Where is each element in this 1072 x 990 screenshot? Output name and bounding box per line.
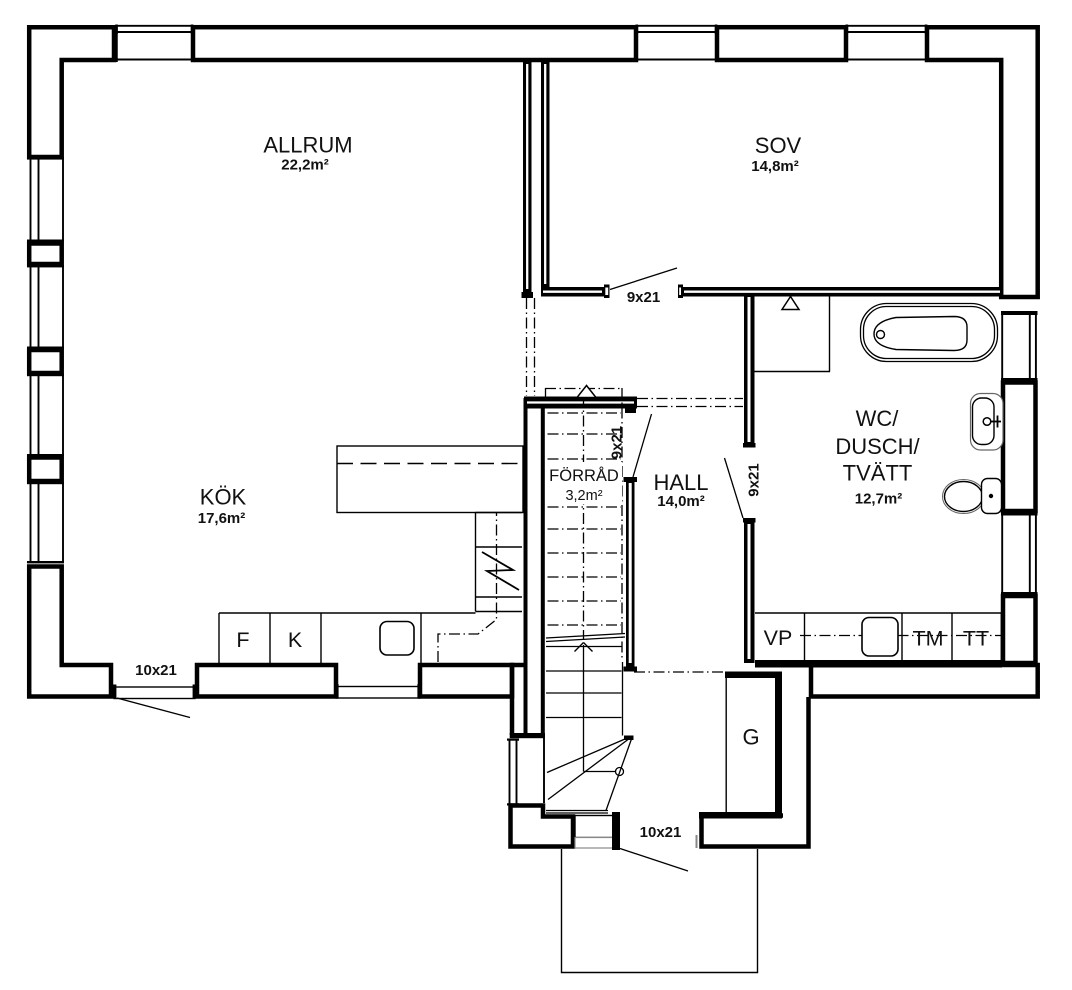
svg-text:VP: VP	[764, 626, 793, 650]
svg-text:DUSCH/: DUSCH/	[835, 434, 920, 459]
svg-text:10x21: 10x21	[135, 662, 177, 679]
svg-text:KÖK: KÖK	[200, 485, 247, 510]
svg-text:14,0m²: 14,0m²	[657, 493, 705, 510]
svg-text:17,6m²: 17,6m²	[198, 510, 246, 527]
svg-text:TT: TT	[963, 627, 989, 651]
svg-text:12,7m²: 12,7m²	[855, 491, 903, 508]
svg-text:10x21: 10x21	[640, 824, 682, 841]
svg-text:ALLRUM: ALLRUM	[263, 133, 352, 158]
svg-text:G: G	[742, 725, 759, 750]
svg-text:9x21: 9x21	[746, 463, 763, 496]
svg-text:9x21: 9x21	[609, 426, 626, 459]
svg-text:3,2m²: 3,2m²	[565, 488, 602, 504]
svg-text:K: K	[288, 628, 303, 652]
svg-text:9x21: 9x21	[627, 289, 660, 306]
svg-text:22,2m²: 22,2m²	[281, 157, 329, 174]
svg-text:F: F	[236, 628, 249, 652]
svg-text:TM: TM	[912, 627, 943, 651]
svg-text:WC/: WC/	[856, 406, 900, 431]
svg-text:TVÄTT: TVÄTT	[843, 461, 913, 486]
svg-text:SOV: SOV	[755, 133, 802, 158]
svg-text:14,8m²: 14,8m²	[751, 158, 799, 175]
svg-text:FÖRRÅD: FÖRRÅD	[549, 466, 619, 485]
svg-text:HALL: HALL	[653, 470, 708, 495]
